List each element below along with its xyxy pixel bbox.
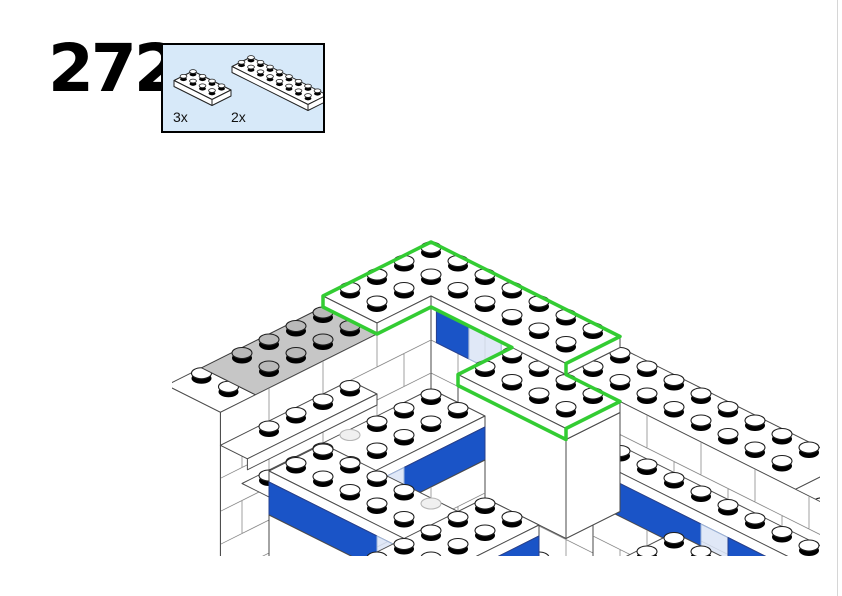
stud-top (313, 444, 333, 455)
stud-top (286, 408, 306, 419)
stud-top (718, 429, 738, 440)
stud-top (394, 485, 414, 496)
stud-top (218, 84, 225, 88)
stud-top (745, 442, 765, 453)
stud-top (199, 84, 206, 88)
model-illustration (172, 224, 820, 556)
stud-top (190, 70, 197, 74)
stud-top (340, 458, 360, 469)
stud-top (286, 348, 306, 359)
stud-top (421, 525, 441, 536)
stud-top (367, 296, 387, 307)
stud-top (259, 361, 279, 372)
stud-top (248, 65, 255, 69)
stud-top (340, 485, 360, 496)
stud-top (267, 65, 274, 69)
part-2x4-quantity: 3x (173, 109, 188, 125)
stud-top (799, 540, 819, 551)
stud-top (664, 402, 684, 413)
stud-top (313, 471, 333, 482)
stud-top (691, 388, 711, 399)
stud-top (314, 89, 321, 93)
step-number: 272 (48, 30, 177, 107)
stud-top (448, 283, 468, 294)
stud-top (259, 421, 279, 432)
stud-top (475, 498, 495, 509)
stud-top (691, 486, 711, 497)
stud-top (718, 500, 738, 511)
stud-top (209, 79, 216, 83)
stud-top (448, 512, 468, 523)
stud-top (367, 498, 387, 509)
stud-top (556, 402, 576, 413)
stud-top (772, 429, 792, 440)
stud-top (340, 381, 360, 392)
stud-top (529, 388, 549, 399)
stud-top (502, 512, 522, 523)
stud-top (421, 269, 441, 280)
stud-top (637, 546, 657, 556)
stud-top (394, 403, 414, 414)
stud-top (394, 430, 414, 441)
stud-top (421, 389, 441, 400)
stud-top (745, 513, 765, 524)
stud-top (664, 473, 684, 484)
wall-face (172, 385, 220, 556)
stud-top (248, 56, 255, 60)
stud-top (448, 403, 468, 414)
stud-top (529, 323, 549, 334)
lego-model-drawing (172, 224, 820, 556)
stud-top (421, 416, 441, 427)
stud-top (664, 375, 684, 386)
stud-top (180, 74, 187, 78)
stud-top (286, 321, 306, 332)
stud-top (190, 79, 197, 83)
stud-top (259, 334, 279, 345)
stud-top (475, 525, 495, 536)
stud-top (286, 84, 293, 88)
stud-top (267, 75, 274, 79)
stud-top (295, 79, 302, 83)
stud-top (276, 70, 283, 74)
stud-top (305, 94, 312, 98)
stud-top (637, 459, 657, 470)
stud-top (664, 533, 684, 544)
stud-top (448, 539, 468, 550)
stud-top (257, 60, 264, 64)
stud-top (276, 79, 283, 83)
stud-top (772, 527, 792, 538)
stud-top (799, 442, 819, 453)
stud-top (556, 337, 576, 348)
stud-top (257, 70, 264, 74)
stud-top (502, 375, 522, 386)
stud-top (475, 296, 495, 307)
stud-top (305, 84, 312, 88)
stud-top (502, 310, 522, 321)
stud-top (772, 456, 792, 467)
page-edge-line (837, 0, 838, 596)
instruction-page: 272 3x 2x (0, 0, 842, 596)
stud-top (367, 443, 387, 454)
stud-top (394, 283, 414, 294)
stud-top (394, 539, 414, 550)
stud-top (367, 416, 387, 427)
stud-top (637, 361, 657, 372)
stud-top (313, 334, 333, 345)
stud-top (691, 415, 711, 426)
stud-top (718, 402, 738, 413)
stud-top (286, 458, 306, 469)
stud-top (367, 471, 387, 482)
stud-top (745, 415, 765, 426)
part-2x8-quantity: 2x (231, 109, 246, 125)
stud-top (610, 375, 630, 386)
stud-top (238, 60, 245, 64)
stud-top (637, 388, 657, 399)
stud-top (232, 348, 252, 359)
stud-top (340, 430, 360, 441)
parts-callout: 3x 2x (161, 43, 325, 133)
stud-top (199, 74, 206, 78)
stud-top (209, 89, 216, 93)
stud-top (286, 75, 293, 79)
stud-top (394, 512, 414, 523)
stud-top (295, 89, 302, 93)
stud-top (313, 394, 333, 405)
stud-top (421, 498, 441, 509)
stud-top (691, 546, 711, 556)
